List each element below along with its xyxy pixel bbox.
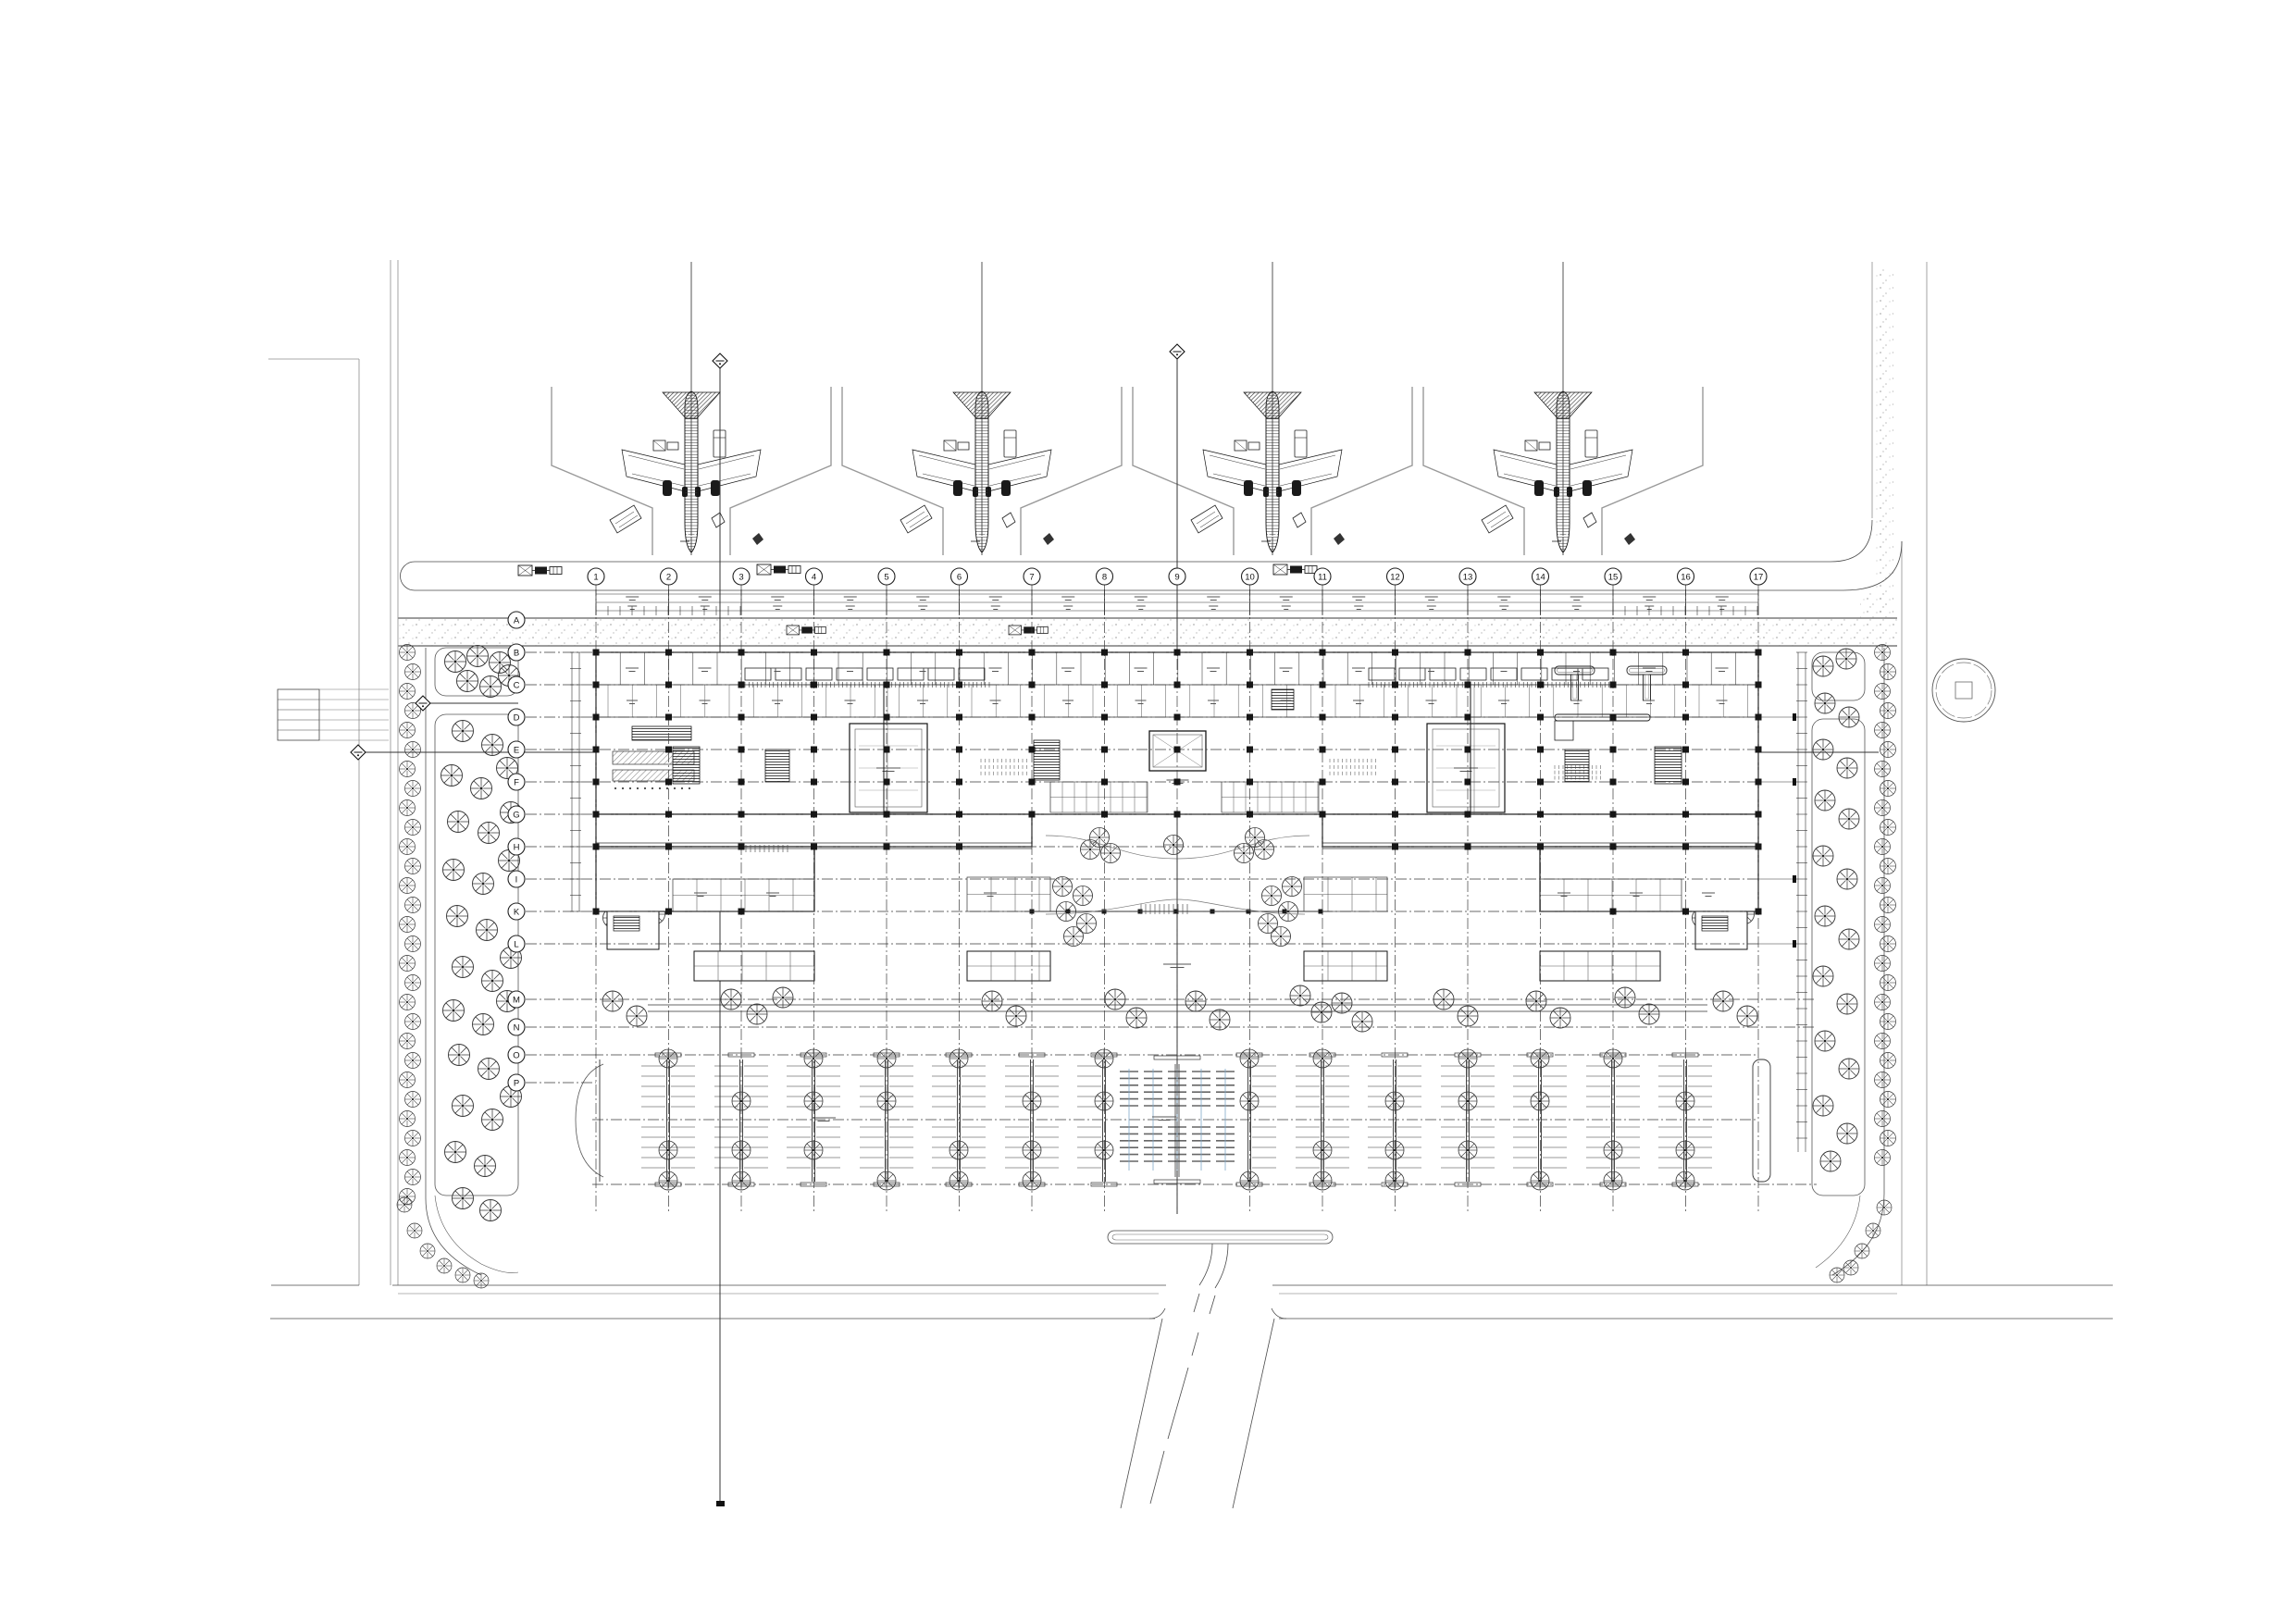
tree-icon: [405, 975, 421, 991]
apron-pavement-texture: [398, 268, 1897, 646]
tree-icon: [1880, 1014, 1896, 1030]
tree-icon: [1095, 1049, 1113, 1068]
tree-icon: [1880, 703, 1896, 719]
tree-icon: [1880, 859, 1896, 874]
tree-icon: [405, 781, 421, 797]
tree-icon: [1531, 1092, 1549, 1110]
axis-diamond-marker: [713, 353, 727, 368]
tree-icon: [473, 1014, 494, 1035]
tree-icon: [1813, 966, 1833, 986]
tree-icon: [1820, 1151, 1841, 1171]
tree-icon: [1064, 927, 1084, 947]
tree-icon: [405, 936, 421, 952]
tree-icon: [1813, 739, 1833, 760]
tree-icon: [1837, 758, 1857, 778]
axis-diamond-marker: [351, 745, 366, 760]
svg-text:9: 9: [1174, 572, 1179, 582]
svg-text:G: G: [513, 810, 519, 820]
tree-icon: [448, 811, 469, 833]
tree-icon: [1813, 1096, 1833, 1116]
apron-tug-train: [1273, 564, 1317, 575]
tree-icon: [1272, 927, 1291, 947]
tree-icon: [1185, 991, 1206, 1011]
axis-diamond-marker: [1170, 344, 1185, 359]
tree-icon: [1866, 1223, 1880, 1238]
tree-icon: [982, 991, 1002, 1011]
tree-icon: [405, 1092, 421, 1108]
tree-icon: [453, 721, 474, 742]
apron-service-road: [401, 520, 1903, 635]
tree-icon: [400, 956, 416, 972]
tree-icon: [400, 684, 416, 700]
tree-icon: [1880, 936, 1896, 952]
axis-markers: [351, 344, 1879, 1506]
svg-text:14: 14: [1535, 572, 1545, 582]
tree-icon: [457, 671, 478, 692]
tree-icon: [1875, 1111, 1891, 1127]
tree-icon: [602, 991, 623, 1011]
tree-icon: [1290, 985, 1310, 1006]
svg-text:10: 10: [1245, 572, 1255, 582]
parking-lot: [576, 1049, 1817, 1190]
tree-icon: [804, 1141, 823, 1159]
svg-text:B: B: [514, 648, 519, 658]
tree-icon: [1843, 1260, 1858, 1275]
tree-icon: [1875, 956, 1891, 972]
tree-icon: [400, 1034, 416, 1049]
tree-icon: [1126, 1008, 1147, 1028]
tree-icon: [405, 820, 421, 836]
aircraft: [552, 262, 831, 555]
svg-text:2: 2: [666, 572, 671, 582]
render-root: 1234567891011121314151617ABCDEFGHIKLMNOP: [268, 260, 2113, 1508]
tree-icon: [659, 1141, 677, 1159]
tree-icon: [453, 957, 474, 978]
tree-icon: [1839, 707, 1859, 727]
svg-text:M: M: [513, 995, 520, 1005]
svg-text:E: E: [514, 745, 519, 755]
tree-icon: [1836, 649, 1856, 669]
tree-icon: [405, 1053, 421, 1069]
tree-icon: [1880, 742, 1896, 758]
tree-icon: [1385, 1171, 1404, 1190]
aircraft-stands: [552, 262, 1703, 555]
svg-text:11: 11: [1318, 572, 1327, 582]
tree-icon: [405, 1131, 421, 1146]
tree-icon: [1164, 836, 1184, 855]
svg-text:P: P: [514, 1078, 519, 1088]
tree-icon: [627, 1006, 647, 1026]
tree-icon: [443, 1000, 465, 1022]
tree-icon: [1875, 839, 1891, 855]
tree-icon: [1877, 1200, 1892, 1215]
svg-text:16: 16: [1681, 572, 1691, 582]
tree-icon: [1875, 1072, 1891, 1088]
tree-icon: [1875, 1034, 1891, 1049]
svg-text:D: D: [514, 712, 520, 723]
tree-icon: [1531, 1171, 1549, 1190]
svg-text:F: F: [514, 777, 519, 787]
tree-icon: [474, 1273, 489, 1288]
tree-icon: [471, 778, 492, 799]
tree-icon: [407, 1223, 422, 1238]
tree-icon: [1880, 975, 1896, 991]
tree-icon: [480, 1200, 502, 1221]
tree-icon: [804, 1092, 823, 1110]
tree-icon: [420, 1244, 435, 1258]
tree-icon: [1095, 1141, 1113, 1159]
svg-text:15: 15: [1608, 572, 1619, 582]
tree-icon: [1283, 877, 1302, 897]
tree-icon: [949, 1141, 968, 1159]
tree-icon: [1240, 1049, 1259, 1068]
tree-icon: [659, 1049, 677, 1068]
tree-icon: [405, 859, 421, 874]
tree-icon: [400, 762, 416, 777]
apron-tug-train: [787, 626, 825, 635]
apron-tug-train: [757, 564, 800, 575]
svg-text:A: A: [514, 615, 520, 626]
tree-icon: [1255, 840, 1274, 860]
svg-text:13: 13: [1463, 572, 1473, 582]
tree-icon: [1875, 762, 1891, 777]
tree-icon: [478, 823, 500, 844]
tree-icon: [1880, 1092, 1896, 1108]
tree-icon: [1053, 877, 1073, 897]
tree-icon: [453, 1096, 474, 1117]
tree-icon: [455, 1268, 470, 1282]
tree-icon: [1074, 886, 1093, 906]
axis-diamond-marker: [416, 696, 430, 711]
svg-text:I: I: [515, 874, 518, 885]
cad-plan-viewport: 1234567891011121314151617ABCDEFGHIKLMNOP: [0, 0, 2296, 1623]
tree-icon: [1880, 664, 1896, 680]
site-plan-drawing: 1234567891011121314151617ABCDEFGHIKLMNOP: [0, 0, 2296, 1623]
tree-icon: [1240, 1092, 1259, 1110]
tree-icon: [482, 1109, 503, 1131]
svg-text:C: C: [514, 680, 520, 690]
tree-icon: [400, 839, 416, 855]
tree-icon: [1676, 1141, 1694, 1159]
svg-text:H: H: [514, 842, 520, 852]
tree-icon: [1081, 840, 1100, 860]
aircraft: [842, 262, 1122, 555]
tree-icon: [400, 878, 416, 894]
tree-icon: [1880, 781, 1896, 797]
tree-icon: [482, 971, 503, 992]
tree-icon: [1639, 1004, 1659, 1024]
tree-icon: [445, 651, 466, 673]
aircraft: [1423, 262, 1703, 555]
tree-icon: [405, 742, 421, 758]
tree-icon: [659, 1171, 677, 1190]
tree-icon: [1526, 991, 1546, 1011]
tree-icon: [475, 1156, 496, 1177]
svg-text:17: 17: [1754, 572, 1764, 582]
tree-icon: [1875, 645, 1891, 661]
svg-text:4: 4: [812, 572, 816, 582]
svg-text:7: 7: [1029, 572, 1034, 582]
tree-icon: [1676, 1171, 1694, 1190]
tree-icon: [1880, 898, 1896, 913]
tree-icon: [747, 1004, 767, 1024]
tree-icon: [449, 1045, 470, 1066]
tree-icon: [1240, 1171, 1259, 1190]
tree-icon: [445, 1142, 466, 1163]
tree-icon: [397, 1197, 412, 1212]
tree-icon: [1837, 994, 1857, 1014]
tree-icon: [473, 873, 494, 895]
tree-icon: [1815, 906, 1835, 926]
tree-icon: [1006, 1006, 1026, 1026]
tree-icon: [1352, 1011, 1372, 1032]
tree-icon: [1839, 929, 1859, 949]
apron-tug-train: [518, 565, 562, 576]
tree-icon: [949, 1171, 968, 1190]
tree-icon: [1332, 993, 1352, 1013]
tree-icon: [477, 920, 498, 941]
tree-icon: [1875, 723, 1891, 738]
tree-icon: [1262, 886, 1282, 906]
tree-icon: [1815, 693, 1835, 713]
tree-icon: [405, 664, 421, 680]
tree-icon: [405, 1014, 421, 1030]
tree-icon: [400, 800, 416, 816]
tree-icon: [1875, 878, 1891, 894]
tree-icon: [1531, 1049, 1549, 1068]
tree-icon: [478, 1059, 500, 1080]
tree-icon: [405, 898, 421, 913]
tree-icon: [400, 1072, 416, 1088]
tree-icon: [1737, 1006, 1757, 1026]
tree-icon: [1385, 1141, 1404, 1159]
tree-icon: [447, 906, 468, 927]
svg-text:L: L: [514, 939, 518, 949]
tree-icon: [1880, 1131, 1896, 1146]
tree-icon: [949, 1049, 968, 1068]
tree-icon: [400, 645, 416, 661]
aircraft: [1133, 262, 1412, 555]
tree-icon: [400, 1150, 416, 1166]
svg-text:K: K: [514, 907, 520, 917]
tree-icon: [1813, 656, 1833, 676]
tree-icon: [1839, 1059, 1859, 1079]
tree-icon: [1830, 1268, 1844, 1282]
tree-icon: [1095, 1092, 1113, 1110]
svg-text:8: 8: [1102, 572, 1107, 582]
tree-icon: [1875, 800, 1891, 816]
tree-icon: [1875, 1150, 1891, 1166]
tree-icon: [453, 1188, 474, 1209]
tree-icon: [1837, 869, 1857, 889]
tree-icon: [1839, 809, 1859, 829]
tree-icon: [1713, 991, 1733, 1011]
svg-text:3: 3: [738, 572, 743, 582]
tree-icon: [405, 1170, 421, 1185]
tree-icon: [467, 646, 489, 667]
svg-text:O: O: [513, 1050, 519, 1060]
svg-text:6: 6: [957, 572, 962, 582]
tree-icon: [1837, 1123, 1857, 1144]
tree-icon: [1815, 790, 1835, 811]
tree-icon: [443, 860, 465, 881]
tree-icon: [400, 995, 416, 1010]
apron-tug-train: [1009, 626, 1048, 635]
tree-icon: [1880, 1053, 1896, 1069]
tree-icon: [400, 1111, 416, 1127]
tree-icon: [1875, 684, 1891, 700]
svg-text:5: 5: [884, 572, 888, 582]
tree-icon: [1676, 1092, 1694, 1110]
tree-icon: [804, 1049, 823, 1068]
svg-text:1: 1: [593, 572, 598, 582]
svg-text:N: N: [514, 1022, 520, 1033]
tree-icon: [1880, 820, 1896, 836]
tree-icon: [1875, 917, 1891, 933]
tree-icon: [1815, 1031, 1835, 1051]
tree-icon: [1875, 995, 1891, 1010]
tree-icon: [441, 765, 463, 787]
tree-icon: [1385, 1092, 1404, 1110]
tree-icon: [1813, 846, 1833, 866]
tree-icon: [400, 917, 416, 933]
tree-icon: [1550, 1008, 1570, 1028]
tree-icon: [437, 1258, 452, 1273]
tree-icon: [480, 676, 502, 698]
svg-text:12: 12: [1390, 572, 1400, 582]
tree-icon: [1855, 1244, 1869, 1258]
tree-icon: [400, 723, 416, 738]
